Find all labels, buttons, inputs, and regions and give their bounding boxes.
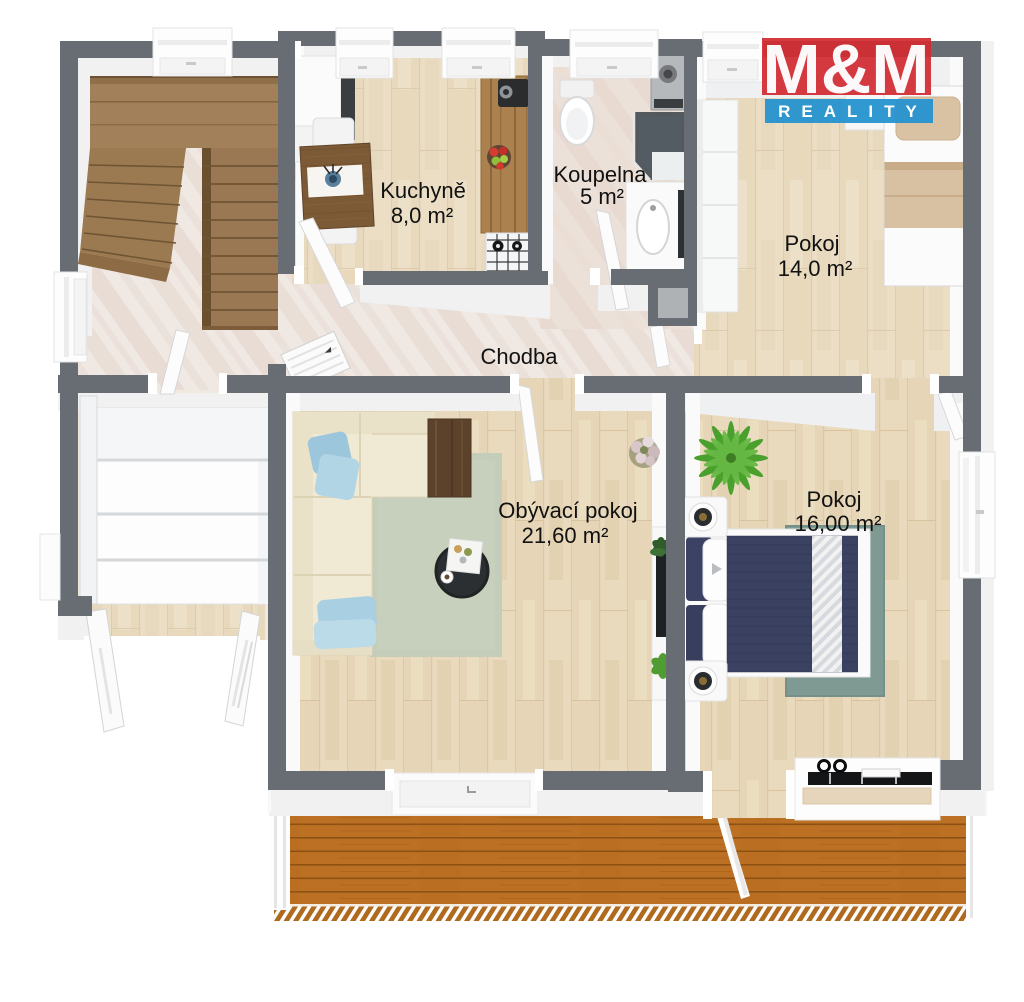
svg-text:8,0 m²: 8,0 m² bbox=[391, 203, 453, 228]
svg-text:REALITY: REALITY bbox=[778, 102, 928, 121]
svg-text:M&M: M&M bbox=[762, 30, 929, 108]
svg-text:Kuchyně: Kuchyně bbox=[380, 178, 466, 203]
svg-text:14,0 m²: 14,0 m² bbox=[778, 256, 853, 281]
svg-text:21,60 m²: 21,60 m² bbox=[522, 523, 609, 548]
svg-text:5 m²: 5 m² bbox=[580, 184, 624, 209]
svg-text:Obývací pokoj: Obývací pokoj bbox=[498, 498, 637, 523]
svg-text:Pokoj: Pokoj bbox=[806, 487, 861, 512]
svg-text:16,00 m²: 16,00 m² bbox=[795, 511, 882, 536]
svg-text:Chodba: Chodba bbox=[480, 344, 558, 369]
svg-text:Pokoj: Pokoj bbox=[784, 231, 839, 256]
